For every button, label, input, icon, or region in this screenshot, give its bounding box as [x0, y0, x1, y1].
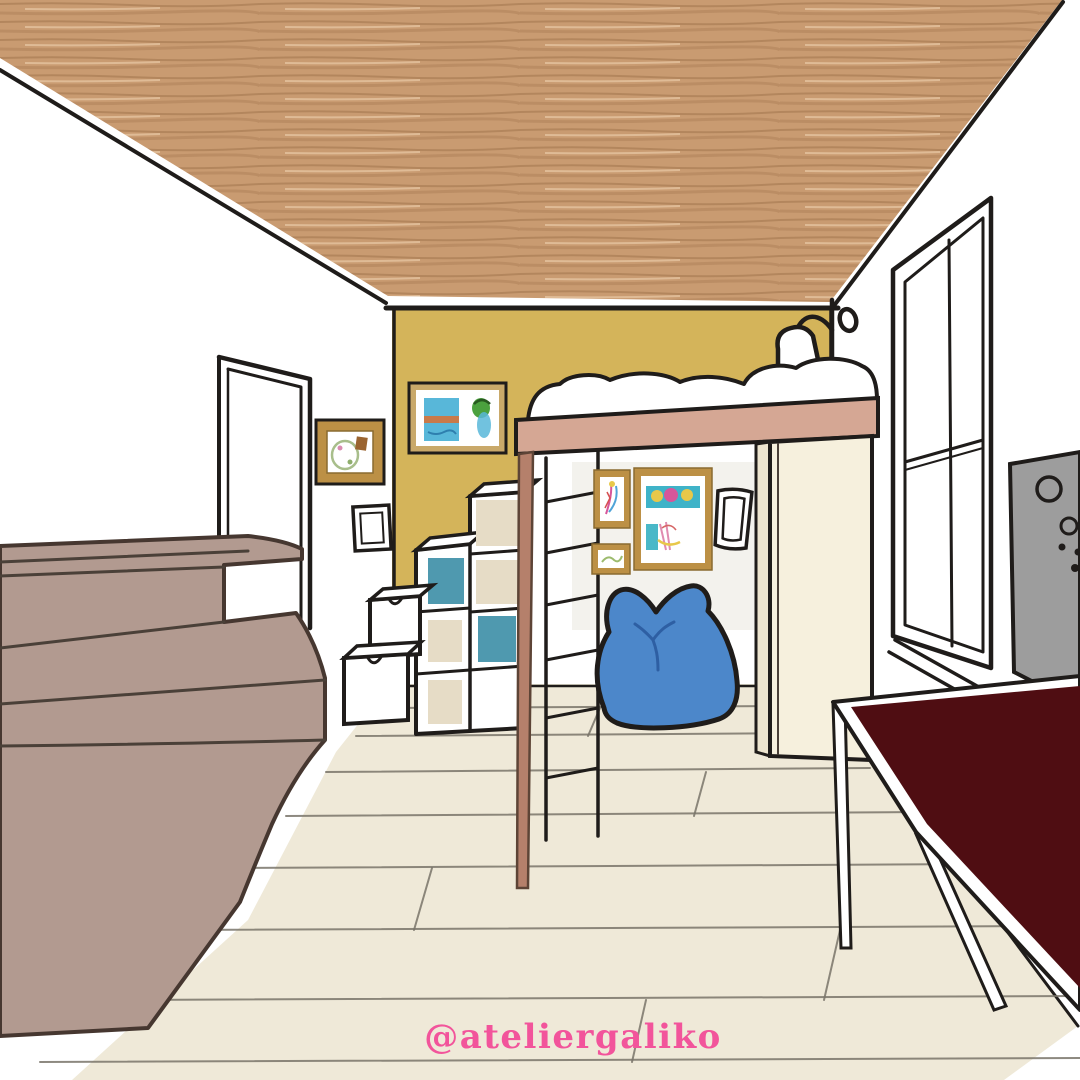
cube-cell-tan — [428, 680, 462, 724]
framed-art-yellow-wall — [409, 383, 506, 453]
sketch-frame-inner — [360, 512, 384, 543]
lamp-mount-ring — [837, 307, 858, 333]
gallery-small-gold-frame — [592, 544, 630, 574]
gold-frame-left-wall — [316, 420, 384, 484]
room-drawing: @ateliergaliko — [0, 0, 1080, 1080]
frame-art-dot — [348, 460, 353, 465]
art-circle — [681, 489, 693, 501]
cube-cell-tan — [428, 620, 462, 662]
wardrobe-side — [756, 442, 770, 756]
stair-box-front — [344, 654, 408, 724]
door-frame-inner — [228, 369, 301, 620]
window-frame-outer — [893, 198, 991, 668]
frame-art-brown-shape — [355, 436, 368, 450]
gallery-tall-gold-frame — [594, 470, 630, 528]
frame-art-dot — [338, 446, 343, 451]
door-frame-outer — [219, 357, 310, 628]
cube-cell-tan — [476, 560, 520, 604]
gallery-black-sketch-frame — [714, 488, 752, 550]
art-circle — [651, 490, 663, 502]
frame-inner — [722, 497, 745, 542]
storage-bin-teal — [428, 558, 464, 604]
art-dot — [609, 481, 615, 487]
pinboard-dot — [1059, 544, 1066, 551]
window-mullion-vertical — [949, 240, 952, 646]
art-drawing-stripe — [424, 416, 459, 423]
small-sketch-frame-left-wall — [353, 505, 391, 551]
art-teal-strip — [646, 524, 658, 550]
window-frame-inner — [905, 218, 983, 652]
ladder-rung — [546, 650, 598, 660]
art-drawing-blue-drip — [477, 412, 491, 438]
door — [219, 357, 310, 628]
watermark: @ateliergaliko — [424, 1017, 722, 1057]
storage-bin-teal — [478, 616, 516, 662]
cube-cell-tan — [476, 500, 520, 546]
window — [889, 198, 1002, 716]
gray-pinboard — [1010, 452, 1080, 706]
gallery-large-gold-frame — [634, 468, 712, 570]
room-illustration: @ateliergaliko — [0, 0, 1080, 1080]
stair-box-lower — [344, 642, 421, 724]
pinboard-dot — [1071, 564, 1079, 572]
ceiling-grain-texture — [0, 0, 1062, 302]
pinboard-panel — [1010, 452, 1080, 706]
art-circle — [664, 488, 678, 502]
